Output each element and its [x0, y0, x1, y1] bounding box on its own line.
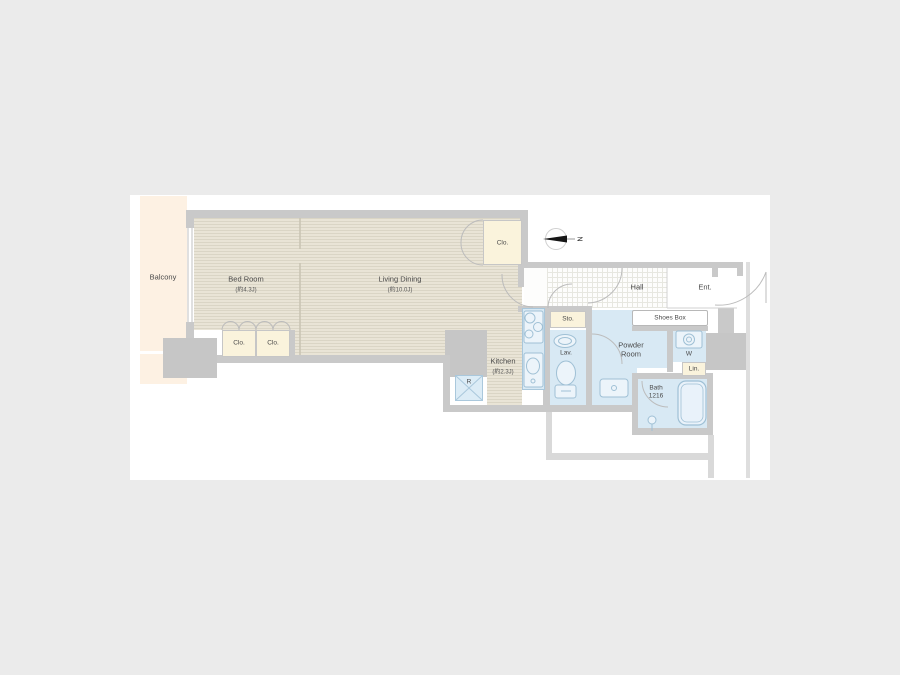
wall-door-stub [712, 268, 718, 277]
closet-bedroom-left-label: Clo. [233, 339, 245, 346]
floor-plan-canvas: Balcony Bed Room (約4.3J) Living Dining (… [130, 195, 770, 480]
wall [737, 262, 743, 276]
lavatory-label: Lav. [560, 349, 572, 356]
powder-room-label: Powder Room [615, 341, 647, 358]
bedroom-label: Bed Room [228, 276, 263, 285]
neighbor-outline [746, 262, 750, 478]
shoes-box-label: Shoes Box [654, 314, 685, 321]
bedroom-size-label: (約4.3J) [235, 285, 256, 294]
pillar [163, 338, 217, 378]
living-floor-lower [295, 310, 448, 355]
bedroom-floor-lower [194, 310, 295, 330]
balcony-label: Balcony [150, 274, 177, 283]
compass-icon [543, 229, 575, 250]
refrigerator-label: R [467, 378, 472, 385]
powder-room-floor-extension [592, 368, 637, 405]
storage-label: Sto. [562, 315, 574, 322]
window [188, 228, 192, 322]
wall-bottom-kitchen [443, 405, 637, 412]
hall-floor [524, 268, 667, 308]
bath-label: Bath [649, 384, 662, 391]
bath-size-label: 1216 [649, 392, 663, 399]
wall-living-hall [518, 265, 524, 287]
corridor-outline [708, 435, 714, 478]
lavatory-floor [550, 330, 586, 405]
wall-closet-divider [290, 330, 295, 357]
washer-label: W [686, 350, 692, 357]
closet-hall-label: Clo. [497, 239, 509, 246]
wall-top-entrance [520, 262, 743, 268]
corridor-outline [546, 412, 552, 455]
wall-top [186, 210, 528, 218]
kitchen-floor-upper [448, 310, 522, 330]
living-dining-label: Living Dining [379, 276, 422, 285]
kitchen-size-label: (約2.3J) [492, 367, 513, 376]
floor-plan-page: Balcony Bed Room (約4.3J) Living Dining (… [0, 0, 900, 675]
wall-lavatory-powder [586, 306, 592, 412]
hall-label: Hall [631, 284, 644, 293]
wall-bath-south [632, 428, 713, 435]
pillar [445, 330, 487, 377]
kitchen-label: Kitchen [490, 358, 515, 367]
bedroom-living-floor [194, 218, 522, 310]
living-dining-size-label: (約10.0J) [388, 285, 413, 294]
wall-bath-east [707, 373, 713, 435]
corridor-outline [546, 453, 714, 460]
pillar [706, 333, 748, 370]
compass-north-label: N [576, 236, 583, 241]
kitchen-counter [522, 308, 545, 390]
wall-bath-west [632, 373, 638, 430]
wall [443, 355, 450, 412]
linen-label: Lin. [689, 365, 699, 372]
wall-powder-washer [667, 330, 673, 372]
closet-bedroom-right-label: Clo. [267, 339, 279, 346]
entrance-label: Ent. [698, 284, 711, 293]
hall-tile-grid [547, 268, 667, 308]
wall [718, 308, 734, 333]
